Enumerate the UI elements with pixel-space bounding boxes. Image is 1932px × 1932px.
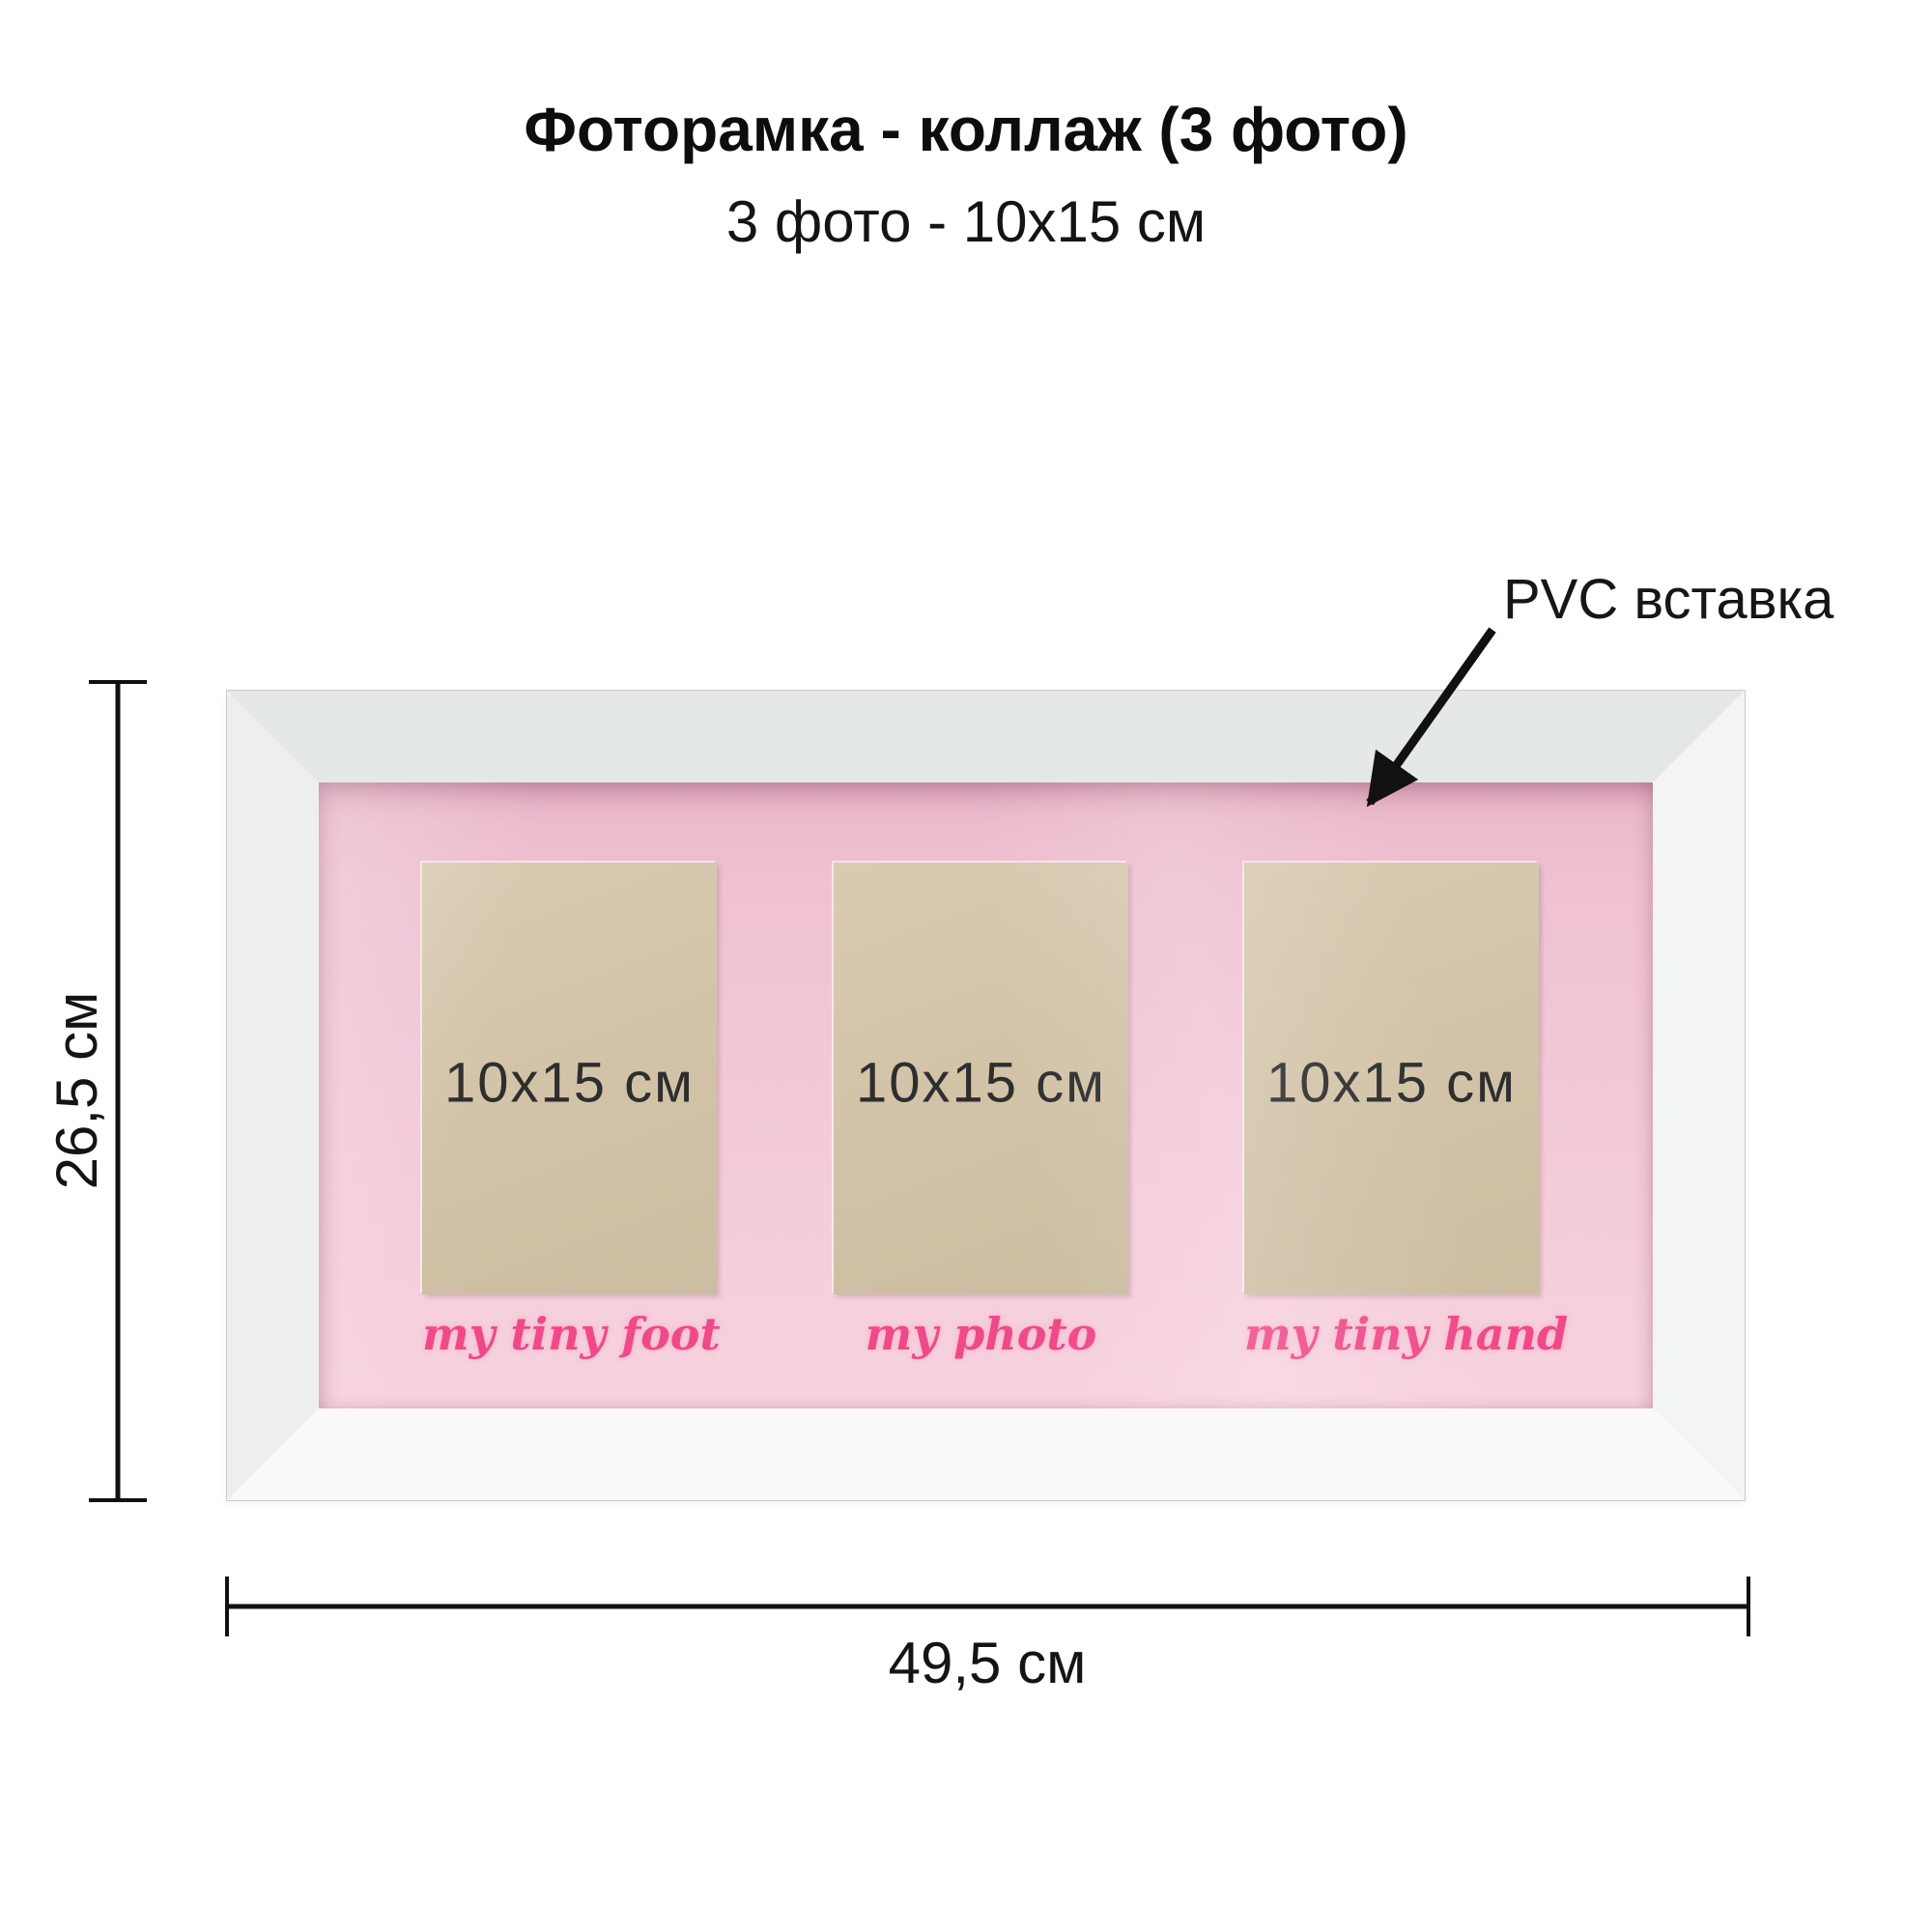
- mat-board: 10х15 см 10х15 см 10х15 см my tiny foot …: [319, 782, 1653, 1408]
- page-title: Фоторамка - коллаж (3 фото): [0, 99, 1932, 160]
- slot-caption-left: my tiny foot: [422, 1312, 717, 1356]
- photo-frame: 10х15 см 10х15 см 10х15 см my tiny foot …: [227, 691, 1745, 1500]
- photo-slot-size-label: 10х15 см: [856, 1050, 1106, 1115]
- photo-slot-size-label: 10х15 см: [1266, 1050, 1517, 1115]
- slot-caption-center: my photo: [834, 1312, 1128, 1356]
- height-dimension-label: 26,5 см: [48, 992, 106, 1190]
- width-dimension-label: 49,5 см: [889, 1634, 1087, 1692]
- photo-slot-left: 10х15 см: [422, 863, 717, 1294]
- width-dimension-line: [227, 1577, 1748, 1636]
- photo-slot-center: 10х15 см: [834, 863, 1128, 1294]
- photo-slot-size-label: 10х15 см: [444, 1050, 695, 1115]
- pvc-insert-label: PVC вставка: [1503, 572, 1833, 628]
- photo-slot-right: 10х15 см: [1244, 863, 1539, 1294]
- page-subtitle: 3 фото - 10х15 см: [0, 193, 1932, 251]
- slot-caption-right: my tiny hand: [1244, 1312, 1539, 1356]
